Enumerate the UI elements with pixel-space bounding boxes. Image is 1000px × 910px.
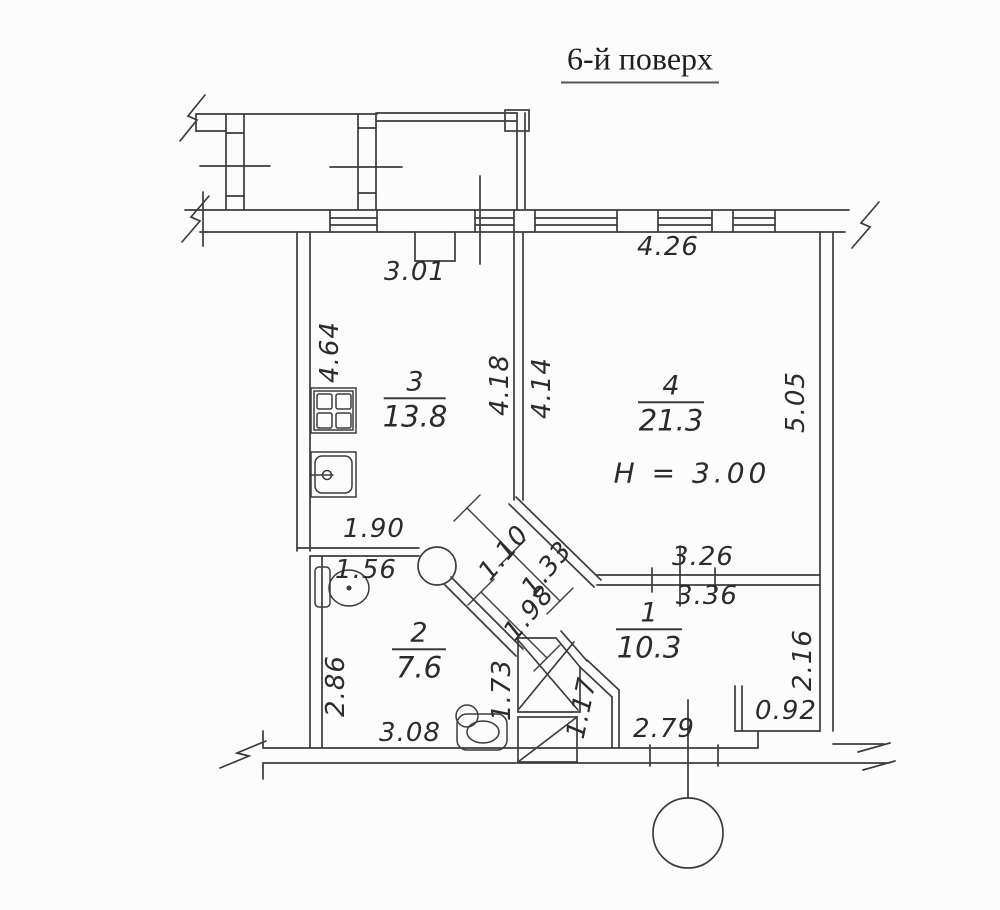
room-number: 4: [638, 372, 704, 399]
room-1-label: 1 10.3: [616, 599, 682, 662]
dim-1-90: 1.90: [343, 514, 405, 544]
dim-2-86: 2.86: [321, 655, 351, 717]
dim-1-56: 1.56: [335, 555, 397, 585]
dim-4-14: 4.14: [527, 357, 557, 419]
break-line-icon: [220, 741, 266, 768]
floor-plan-drawing: [0, 0, 1000, 910]
room-2-label: 2 7.6: [392, 619, 446, 682]
room-area: 7.6: [392, 652, 446, 682]
dim-2-79: 2.79: [633, 714, 695, 744]
dim-5-05: 5.05: [781, 371, 811, 433]
break-line-icon: [180, 95, 205, 141]
window-icon: [535, 210, 617, 232]
room-number: 2: [392, 619, 446, 646]
room-area: 21.3: [638, 405, 704, 435]
washing-machine-icon: [418, 547, 456, 585]
dim-2-16: 2.16: [788, 629, 818, 691]
window-icon: [733, 210, 775, 232]
balcony-left: [180, 95, 377, 210]
floor-plan-page: 6-й поверх 3 13.8 4 21.3 2 7.6 1 10.3 H …: [0, 0, 1000, 910]
sink-icon: [311, 452, 356, 497]
ceiling-height-note: H = 3.00: [614, 457, 771, 490]
dim-0-92: 0.92: [755, 696, 817, 726]
balcony-right-glazed: [376, 110, 529, 264]
dim-1-73: 1.73: [487, 659, 517, 721]
dim-3-08: 3.08: [379, 718, 441, 748]
dim-3-36: 3.36: [676, 581, 738, 611]
room-number: 1: [616, 599, 682, 626]
window-icon: [658, 210, 712, 232]
stove-icon: [311, 388, 356, 433]
dim-4-26: 4.26: [637, 232, 699, 262]
window-icon: [330, 210, 377, 232]
room-area: 10.3: [616, 632, 682, 662]
dim-4-18: 4.18: [485, 354, 515, 416]
balcony-divider-column: [330, 114, 402, 210]
dim-4-64: 4.64: [315, 321, 345, 383]
room-4-label: 4 21.3: [638, 372, 704, 435]
dim-3-01: 3.01: [384, 257, 446, 287]
top-wall: [182, 192, 879, 261]
break-line-icon: [852, 202, 879, 248]
dim-3-26: 3.26: [672, 542, 734, 572]
break-line-icon: [182, 196, 209, 242]
room-area: 13.8: [383, 401, 448, 431]
page-title: 6-й поверх: [561, 41, 719, 84]
room-3-label: 3 13.8: [383, 368, 448, 431]
room-number: 3: [383, 368, 448, 395]
